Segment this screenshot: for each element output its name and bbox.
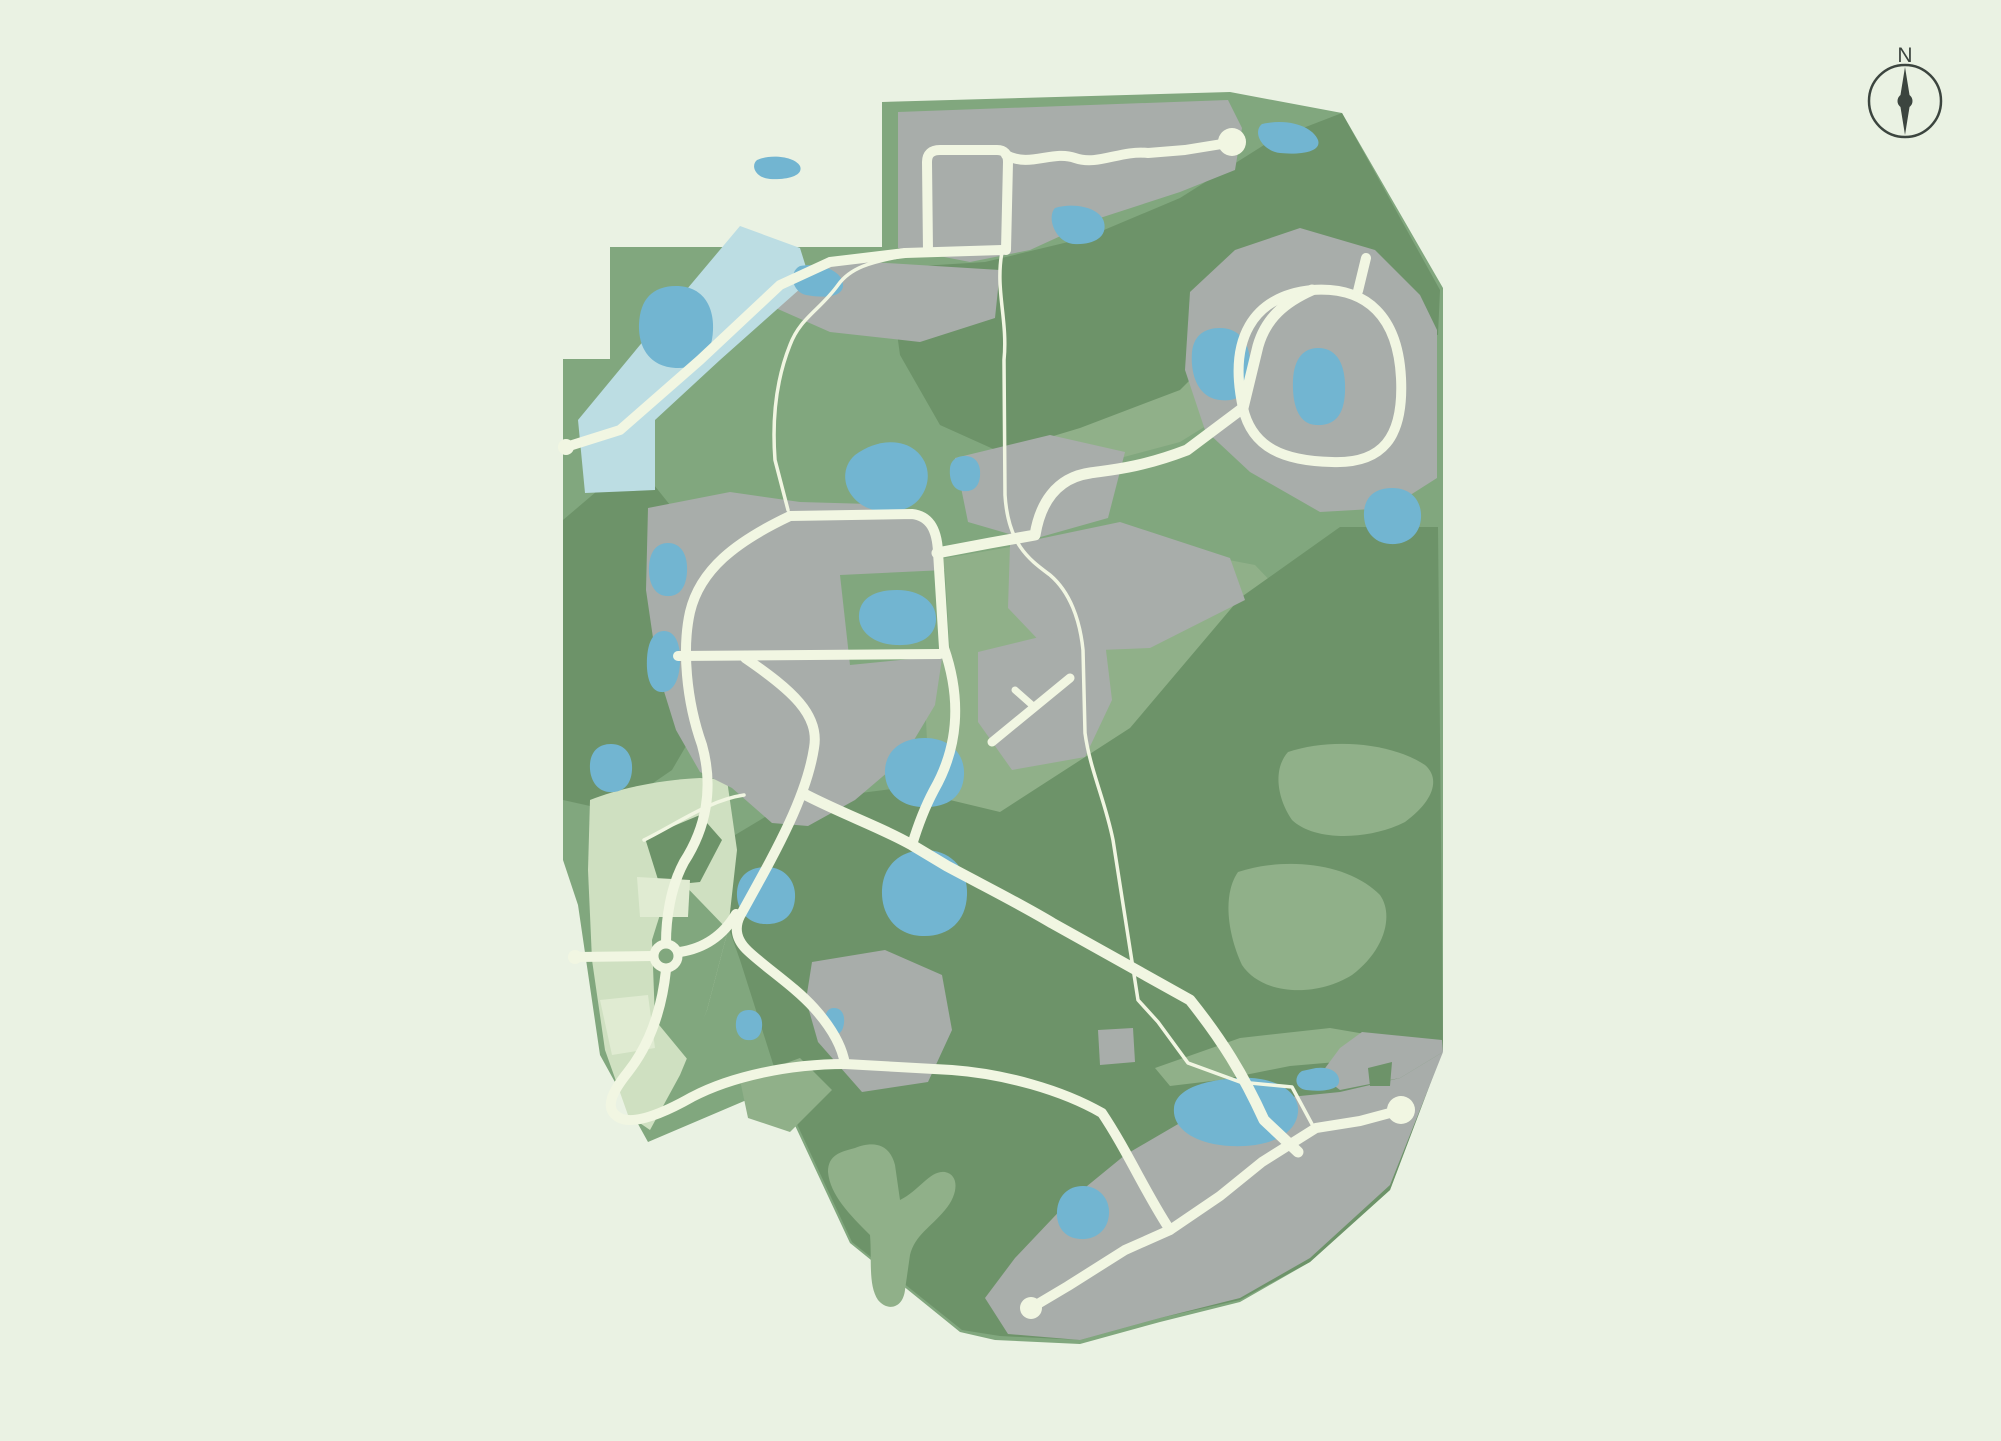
map-stage: N — [0, 0, 2001, 1441]
pond-south-b — [882, 850, 967, 936]
neighborhood-southeast-block — [1098, 1028, 1135, 1065]
pond-west-upper — [649, 543, 687, 596]
pond-village-center — [859, 590, 936, 645]
community-map: N — [0, 0, 2001, 1441]
pond-pale-zone — [736, 1010, 762, 1040]
cul-de-sac-southeast — [1387, 1096, 1415, 1124]
pond-artery — [950, 456, 980, 491]
pond-loop-inner — [1293, 348, 1345, 425]
village-cross-road — [678, 654, 940, 656]
pond-pale-north — [590, 744, 632, 792]
road-stub-pale-west — [568, 950, 582, 964]
pond-north-small — [754, 157, 800, 180]
pond-west-lower — [647, 631, 680, 692]
road-stub-west — [558, 439, 574, 455]
pond-loop-south — [1364, 488, 1421, 544]
roundabout-west-spoke — [578, 956, 652, 957]
compass-hub-icon — [1898, 94, 1913, 109]
pond-southeast-small — [1296, 1068, 1339, 1091]
cul-de-sac-north — [1218, 128, 1246, 156]
compass-north-label: N — [1897, 44, 1912, 67]
cul-de-sac-south — [1020, 1297, 1042, 1319]
map-layers — [558, 92, 1443, 1344]
compass-rose: N — [1869, 44, 1941, 137]
north-road — [905, 250, 1002, 253]
pond-southwest-block — [1057, 1186, 1109, 1239]
